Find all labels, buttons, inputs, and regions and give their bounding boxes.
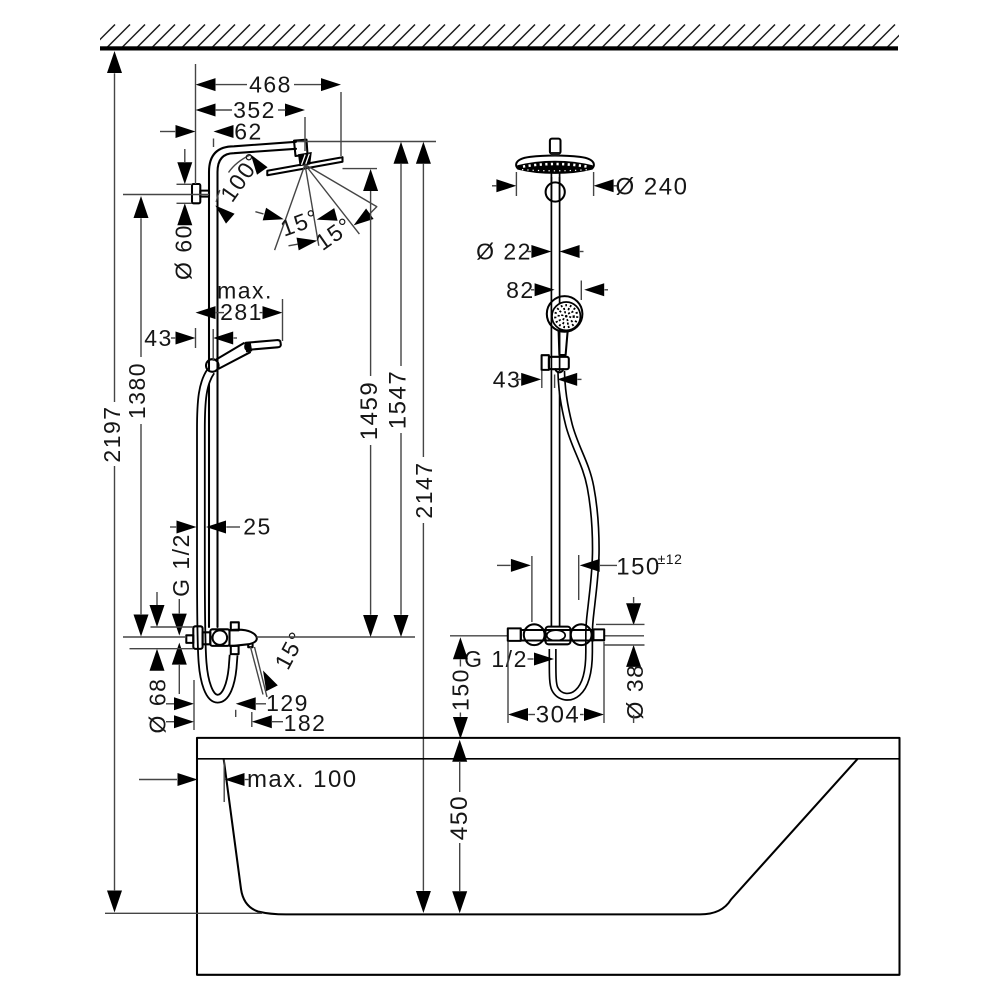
svg-text:150: 150 xyxy=(447,668,473,711)
svg-text:43: 43 xyxy=(493,367,522,393)
svg-text:150: 150 xyxy=(616,554,661,581)
svg-text:Ø 22: Ø 22 xyxy=(476,239,532,265)
svg-text:2197: 2197 xyxy=(99,405,125,462)
svg-text:1380: 1380 xyxy=(124,362,150,419)
svg-text:43: 43 xyxy=(144,325,173,351)
svg-text:Ø 240: Ø 240 xyxy=(616,174,689,201)
svg-text:Ø 38: Ø 38 xyxy=(622,664,648,720)
svg-text:G 1/2: G 1/2 xyxy=(464,646,528,672)
svg-text:max. 100: max. 100 xyxy=(247,766,358,793)
svg-text:1459: 1459 xyxy=(356,381,383,440)
svg-text:304: 304 xyxy=(536,702,581,729)
svg-text:25: 25 xyxy=(243,514,272,540)
svg-text:Ø 60: Ø 60 xyxy=(171,224,197,280)
svg-text:2147: 2147 xyxy=(411,461,437,518)
svg-text:1547: 1547 xyxy=(385,370,412,429)
svg-text:450: 450 xyxy=(446,795,473,840)
svg-text:182: 182 xyxy=(284,710,327,736)
svg-text:468: 468 xyxy=(249,72,292,98)
svg-text:62: 62 xyxy=(234,119,263,145)
svg-text:281: 281 xyxy=(220,299,263,325)
svg-text:±12: ±12 xyxy=(658,551,683,567)
svg-text:82: 82 xyxy=(506,277,535,303)
svg-text:G 1/2: G 1/2 xyxy=(168,533,194,597)
svg-text:Ø 68: Ø 68 xyxy=(145,678,171,734)
